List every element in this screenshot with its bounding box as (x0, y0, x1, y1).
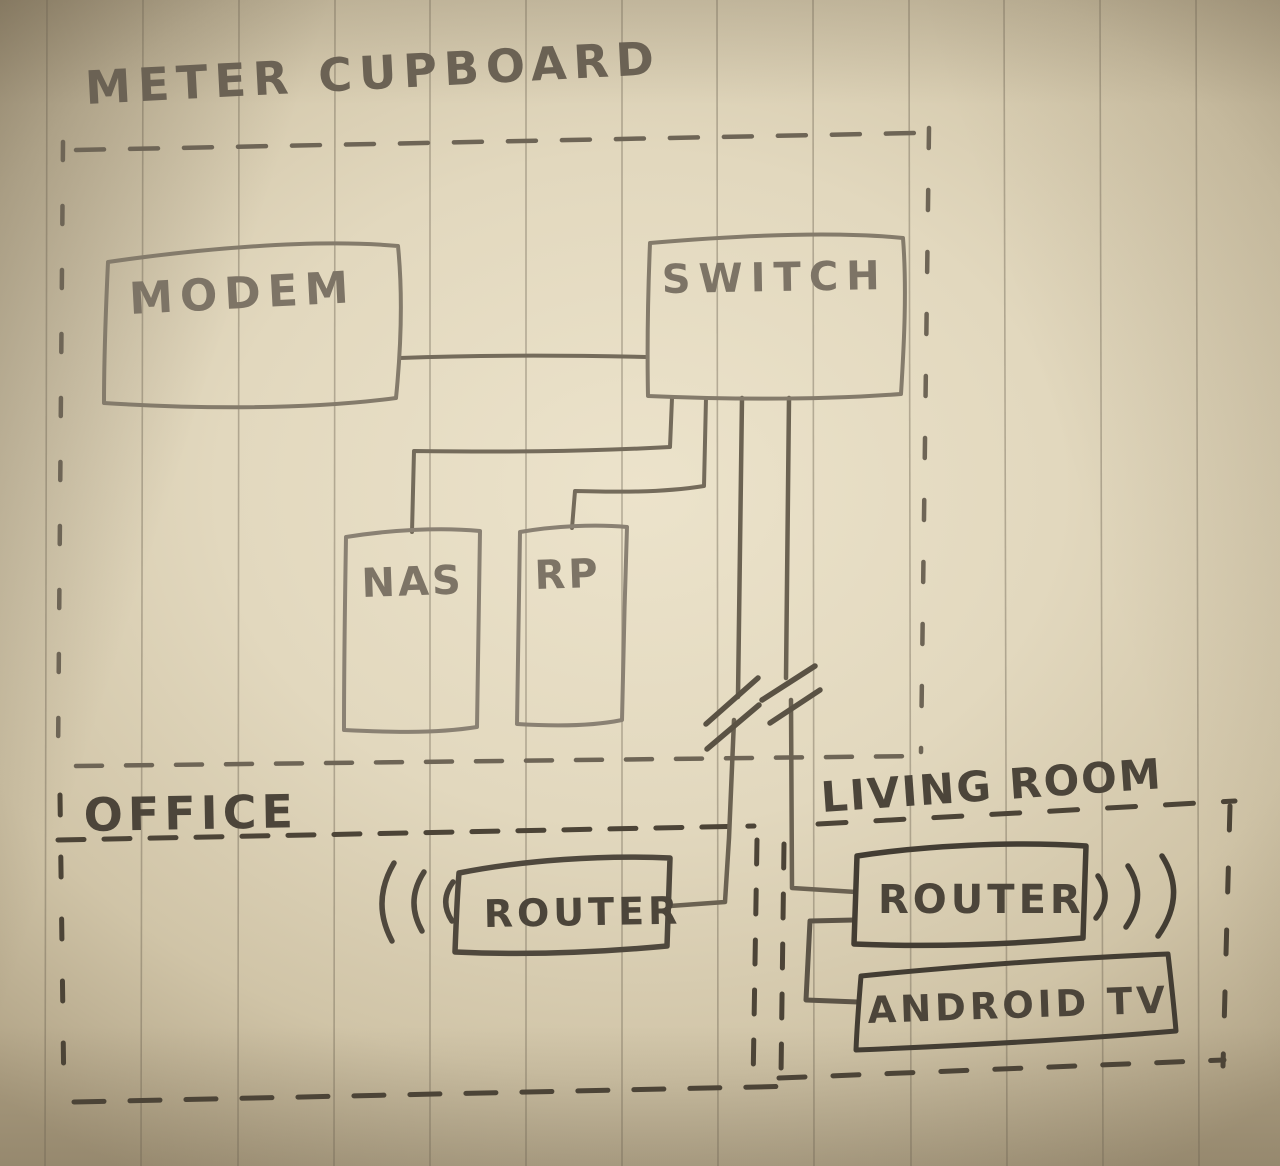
living-room-router-label: ROUTER (878, 877, 1085, 923)
switch-label: SWITCH (661, 253, 888, 303)
break-slash (762, 666, 815, 700)
network-sketch-svg: METER CUPBOARD MODEM SWITCH NAS RP OFFIC… (0, 0, 1280, 1166)
wifi-arc (1126, 866, 1138, 927)
office-boundary (58, 795, 800, 1102)
office-boundary-bottom (74, 1086, 800, 1102)
office-router-wifi-icon (382, 863, 453, 941)
connection-modem-switch (400, 356, 646, 358)
living-room-label: LIVING ROOM (819, 749, 1164, 822)
wifi-arc (446, 882, 453, 921)
connection-switch-rp (572, 398, 706, 528)
notebook-paper: METER CUPBOARD MODEM SWITCH NAS RP OFFIC… (0, 0, 1280, 1166)
ruled-line (45, 0, 47, 1166)
wifi-arc (1158, 856, 1174, 936)
living-room-boundary-right (1223, 806, 1230, 1066)
wifi-arc (382, 863, 394, 941)
office-boundary-right (753, 840, 757, 1086)
break-slash (706, 678, 758, 724)
living-room-boundary-left (781, 844, 784, 1076)
ruled-line (334, 0, 335, 1166)
meter-cupboard-boundary-top (76, 133, 916, 150)
office-label: OFFICE (83, 784, 298, 842)
living-room-boundary-bottom (779, 1060, 1224, 1078)
ruled-line (141, 0, 143, 1166)
nas-label: NAS (361, 557, 465, 607)
meter-cupboard-label: METER CUPBOARD (84, 31, 662, 115)
wifi-arc (414, 872, 424, 931)
android-tv-label: ANDROID TV (867, 978, 1170, 1031)
living-room-router-wifi-icon (1096, 856, 1174, 936)
ruled-line (717, 0, 718, 1166)
break-slash (770, 690, 820, 723)
meter-cupboard-boundary (58, 128, 929, 766)
wifi-arc (1096, 876, 1105, 918)
office-router-label: ROUTER (483, 889, 681, 936)
rp-label: RP (534, 551, 602, 599)
ruled-line (1196, 0, 1199, 1166)
modem-label: MODEM (128, 262, 357, 325)
ruled-line (813, 0, 814, 1166)
meter-cupboard-boundary-right (921, 128, 929, 752)
meter-cupboard-boundary-left (58, 142, 63, 760)
connection-switch-nas (412, 398, 672, 532)
ruled-line (238, 0, 239, 1166)
